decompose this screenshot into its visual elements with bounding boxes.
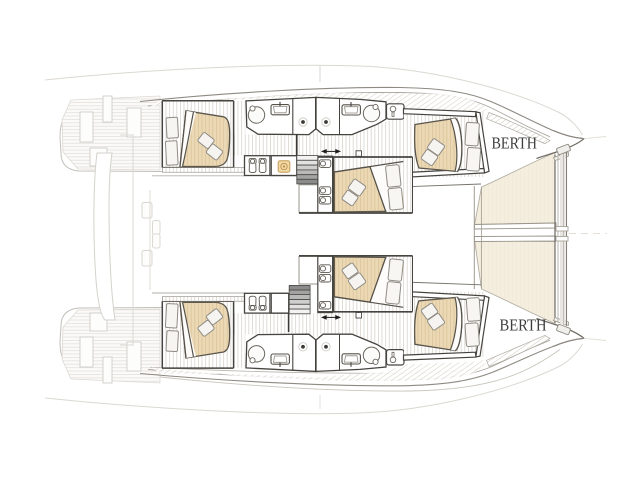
svg-text:BERTH: BERTH xyxy=(500,316,547,335)
svg-text:BERTH: BERTH xyxy=(492,134,538,153)
